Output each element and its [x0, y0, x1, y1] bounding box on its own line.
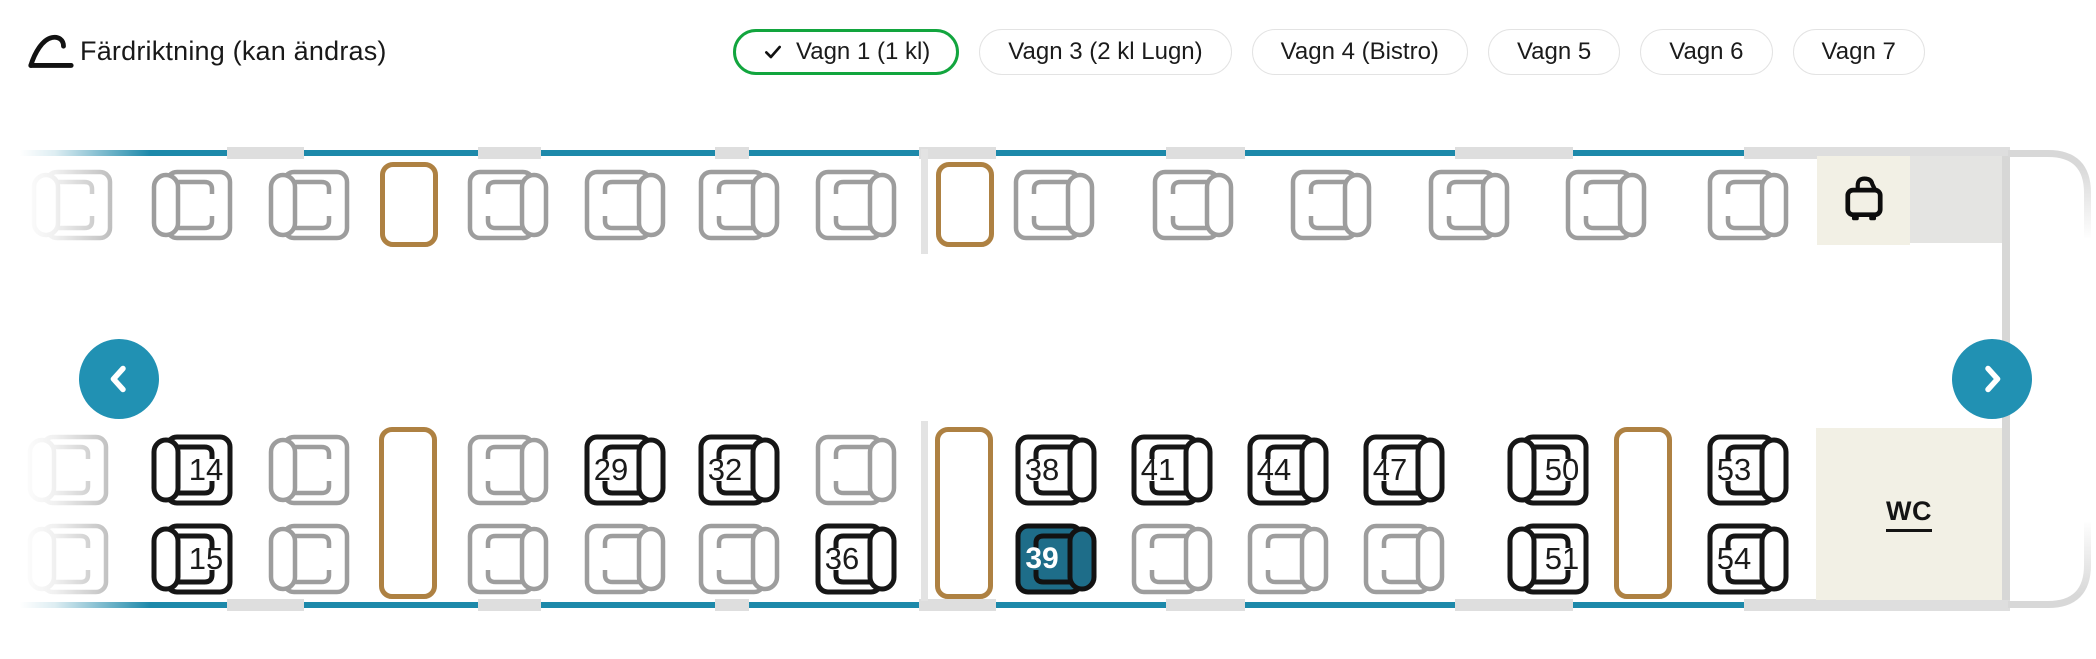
seat-unavailable	[697, 522, 781, 596]
seat-unavailable	[1362, 522, 1446, 596]
wc-label-wrap: WC	[1816, 428, 2002, 600]
tab-vagn-1-1-kl[interactable]: Vagn 1 (1 kl)	[733, 29, 959, 75]
back-arrow-icon	[26, 30, 76, 74]
seat-number: 15	[183, 522, 229, 596]
window-gap	[1166, 147, 1245, 159]
seat-icon	[1564, 168, 1648, 242]
seat-unavailable	[583, 522, 667, 596]
scroll-right-button[interactable]	[1952, 339, 2032, 419]
seat-unavailable	[267, 433, 351, 507]
seat-number: 54	[1711, 522, 1757, 596]
seat-unavailable	[150, 168, 234, 242]
table	[1614, 427, 1672, 599]
seat-icon	[466, 433, 550, 507]
seat-unavailable	[267, 168, 351, 242]
scroll-left-button[interactable]	[79, 339, 159, 419]
wc-label: WC	[1886, 496, 1932, 532]
seat-icon	[26, 522, 110, 596]
window-gap	[227, 599, 304, 611]
seat-unavailable	[583, 168, 667, 242]
table	[936, 162, 994, 247]
tab-vagn-7[interactable]: Vagn 7	[1793, 29, 1925, 75]
seat-unavailable	[1289, 168, 1373, 242]
seat-number: 14	[183, 433, 229, 507]
table	[379, 427, 437, 599]
seat-icon	[26, 433, 110, 507]
seat-number: 32	[702, 433, 748, 507]
seat-icon	[583, 168, 667, 242]
tab-label: Vagn 5	[1517, 38, 1591, 66]
window-gap	[919, 147, 996, 159]
carriage-tabs: Vagn 1 (1 kl)Vagn 3 (2 kl Lugn)Vagn 4 (B…	[733, 29, 1925, 75]
seat-unavailable	[1706, 168, 1790, 242]
seat-unavailable	[814, 433, 898, 507]
seat-15[interactable]: 15	[150, 522, 234, 596]
seat-unavailable	[267, 522, 351, 596]
seat-icon	[1706, 168, 1790, 242]
seat-29[interactable]: 29	[583, 433, 667, 507]
window-gap	[1455, 599, 1573, 611]
seat-icon	[1427, 168, 1511, 242]
table	[380, 162, 438, 247]
seat-unavailable	[466, 168, 550, 242]
seat-icon	[1012, 168, 1096, 242]
window-gap	[715, 147, 749, 159]
tab-vagn-5[interactable]: Vagn 5	[1488, 29, 1620, 75]
seat-icon	[267, 522, 351, 596]
seat-39[interactable]: 39	[1014, 522, 1098, 596]
seat-icon	[697, 522, 781, 596]
seat-number: 47	[1367, 433, 1413, 507]
table	[935, 427, 993, 599]
tab-vagn-4-bistro[interactable]: Vagn 4 (Bistro)	[1252, 29, 1468, 75]
seat-number: 39	[1019, 522, 1065, 596]
seat-unavailable	[26, 522, 110, 596]
seat-50[interactable]: 50	[1506, 433, 1590, 507]
seat-unavailable	[1151, 168, 1235, 242]
seat-number: 38	[1019, 433, 1065, 507]
window-gap	[1455, 147, 1573, 159]
seat-unavailable	[1427, 168, 1511, 242]
seat-14[interactable]: 14	[150, 433, 234, 507]
partition-wall	[921, 149, 928, 254]
seat-unavailable	[697, 168, 781, 242]
seat-41[interactable]: 41	[1130, 433, 1214, 507]
tab-label: Vagn 1 (1 kl)	[796, 38, 930, 66]
seat-number: 51	[1539, 522, 1585, 596]
seat-38[interactable]: 38	[1014, 433, 1098, 507]
chevron-left-icon	[107, 364, 131, 394]
partition-wall	[921, 421, 928, 601]
seat-icon	[267, 433, 351, 507]
window-gap	[919, 599, 996, 611]
seat-51[interactable]: 51	[1506, 522, 1590, 596]
seat-icon	[814, 433, 898, 507]
seat-unavailable	[1012, 168, 1096, 242]
seat-36[interactable]: 36	[814, 522, 898, 596]
seat-icon	[1151, 168, 1235, 242]
checkmark-icon	[762, 42, 784, 62]
window-gap	[478, 599, 541, 611]
seat-53[interactable]: 53	[1706, 433, 1790, 507]
seat-number: 36	[819, 522, 865, 596]
seat-unavailable	[30, 168, 114, 242]
seat-number: 50	[1539, 433, 1585, 507]
seat-icon	[1362, 522, 1446, 596]
tab-label: Vagn 6	[1669, 38, 1743, 66]
seat-icon	[30, 168, 114, 242]
seat-icon	[814, 168, 898, 242]
seat-unavailable	[1564, 168, 1648, 242]
back-button[interactable]	[24, 26, 78, 78]
seat-unavailable	[1130, 522, 1214, 596]
seat-unavailable	[1246, 522, 1330, 596]
seat-icon	[583, 522, 667, 596]
luggage-icon	[1844, 176, 1884, 222]
seat-unavailable	[814, 168, 898, 242]
seat-number: 29	[588, 433, 634, 507]
window-gap	[478, 147, 541, 159]
seat-54[interactable]: 54	[1706, 522, 1790, 596]
tab-label: Vagn 4 (Bistro)	[1281, 38, 1439, 66]
seat-icon	[150, 168, 234, 242]
vestibule-area	[1910, 156, 2002, 243]
window-gap	[715, 599, 749, 611]
seat-number: 44	[1251, 433, 1297, 507]
seat-icon	[267, 168, 351, 242]
seat-number: 41	[1135, 433, 1181, 507]
page-title: Färdriktning (kan ändras)	[80, 36, 387, 67]
seat-number: 53	[1711, 433, 1757, 507]
tab-label: Vagn 7	[1822, 38, 1896, 66]
seat-icon	[1246, 522, 1330, 596]
seat-47[interactable]: 47	[1362, 433, 1446, 507]
seat-icon	[466, 168, 550, 242]
seat-unavailable	[466, 522, 550, 596]
tab-vagn-3-2-kl-lugn[interactable]: Vagn 3 (2 kl Lugn)	[979, 29, 1231, 75]
tab-label: Vagn 3 (2 kl Lugn)	[1008, 38, 1202, 66]
seat-icon	[697, 168, 781, 242]
seat-unavailable	[26, 433, 110, 507]
seat-44[interactable]: 44	[1246, 433, 1330, 507]
seat-32[interactable]: 32	[697, 433, 781, 507]
window-gap	[1744, 599, 2010, 611]
seat-unavailable	[466, 433, 550, 507]
tab-vagn-6[interactable]: Vagn 6	[1640, 29, 1772, 75]
window-gap	[227, 147, 304, 159]
seat-map-screen: Färdriktning (kan ändras) Vagn 1 (1 kl)V…	[0, 0, 2096, 659]
seat-icon	[1289, 168, 1373, 242]
seat-icon	[1130, 522, 1214, 596]
chevron-right-icon	[1980, 364, 2004, 394]
window-gap	[1166, 599, 1245, 611]
seat-icon	[466, 522, 550, 596]
